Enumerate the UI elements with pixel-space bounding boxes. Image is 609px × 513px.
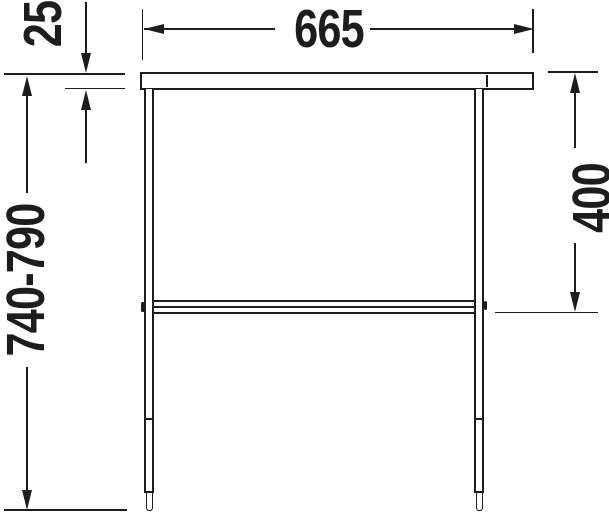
rail-fitting-right [484,301,487,311]
technical-drawing-canvas: 665 25 740-790 400 [0,0,609,513]
height-dim-line-lower [26,367,28,490]
height-dim-arrow-up-icon [22,76,32,96]
width-dim-label: 665 [294,2,364,56]
left-leg [144,89,154,493]
towel-rail-top-line [154,300,474,302]
thickness-dim-label: 25 [16,0,70,46]
width-dim-line-right [370,28,514,30]
tabletop-divider-line [486,75,488,88]
thickness-dim-line-lower [85,110,87,164]
left-leg-joint-line [144,418,154,420]
right-leg [474,89,484,493]
width-dim-arrow-right-icon [514,24,534,34]
rail-dim-arrow-up-icon [570,73,580,93]
height-dim-label: 740-790 [0,204,53,357]
towel-rail-bottom-line [154,306,474,308]
thickness-dim-arrow-down-icon [81,53,91,73]
width-dim-line-left [144,28,276,30]
thickness-dim-line-upper [85,2,87,54]
right-leg-joint-line [474,418,484,420]
height-dim-line-upper [26,96,28,194]
thickness-dim-arrow-up-icon [81,90,91,110]
left-foot [146,493,153,511]
rail-dim-extension-bottom [495,312,598,314]
right-foot [476,493,483,511]
rail-dim-line-upper [574,93,576,148]
height-dim-extension-mid [65,88,125,90]
rail-dim-arrow-down-icon [570,292,580,312]
rail-dim-line-lower [574,243,576,292]
cross-brace-line [154,312,474,315]
height-dim-arrow-down-icon [22,490,32,510]
width-dim-extension-left [142,9,144,60]
tabletop [140,72,534,90]
rail-fitting-left [141,302,144,312]
rail-dim-label: 400 [565,163,609,233]
